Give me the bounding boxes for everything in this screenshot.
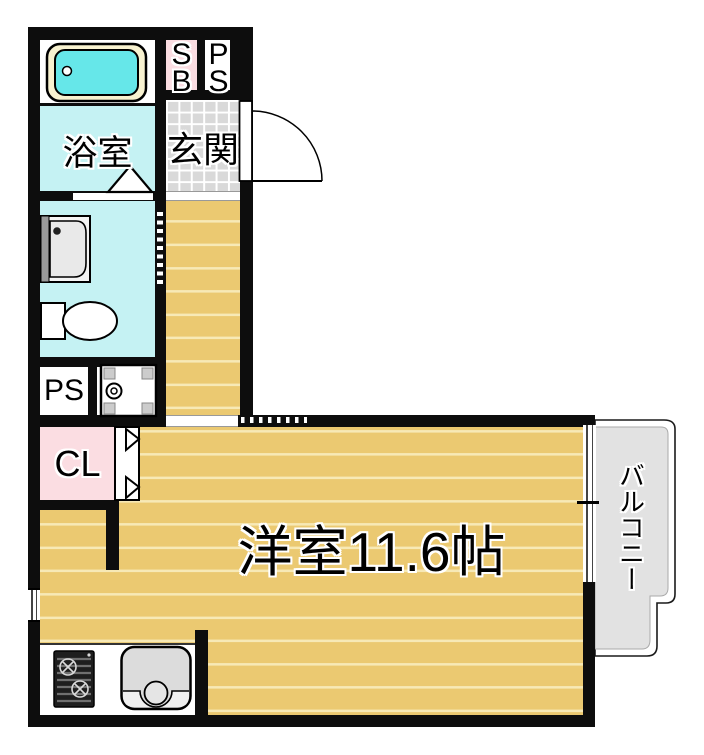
wall-wing-right xyxy=(240,27,253,418)
window-frame-line xyxy=(36,590,38,620)
window-center-tick xyxy=(577,501,599,504)
corridor-room-threshold xyxy=(166,415,238,427)
shoebox-label-line2: B xyxy=(171,68,191,95)
washroom-sliding-door xyxy=(157,212,163,284)
balcony-label: バルコニー xyxy=(615,452,647,602)
wall-sb-ps-divider xyxy=(197,40,205,90)
main-room-label: 洋室11.6帖 xyxy=(160,517,583,577)
pipe-shaft-top-line2: S xyxy=(208,68,228,95)
closet-folding-door xyxy=(112,425,142,503)
washing-machine-pan xyxy=(99,363,159,419)
balcony-sliding-window xyxy=(583,425,596,582)
floor-plan: 浴室 玄関 S B P S PS CL 洋室11.6帖 バルコニー xyxy=(0,0,704,755)
wall-bottom xyxy=(28,715,595,727)
wall-ps-divider xyxy=(88,367,97,415)
bathtub xyxy=(39,37,157,109)
entrance-label: 玄関 xyxy=(166,126,240,168)
kitchen-sink xyxy=(119,644,194,712)
pipe-shaft-top-line1: P xyxy=(208,41,228,68)
toilet xyxy=(40,299,122,343)
window-frame-line xyxy=(586,425,588,582)
wall-left xyxy=(28,27,40,727)
entrance-step-threshold xyxy=(166,191,240,201)
window-frame-line xyxy=(592,425,594,582)
entrance-door-swing xyxy=(238,94,330,188)
pipe-shaft-top-label: P S xyxy=(205,41,232,95)
window-frame-line xyxy=(31,590,33,620)
closet-label: CL xyxy=(40,444,115,484)
washbasin xyxy=(39,214,93,284)
side-window xyxy=(28,588,40,622)
opening-dashed-wall xyxy=(241,417,307,423)
bathroom-label: 浴室 xyxy=(40,130,155,170)
pipe-shaft-label: PS xyxy=(40,374,88,408)
wall-closet-bottom xyxy=(28,500,115,510)
shoebox-label: S B xyxy=(166,41,197,95)
shoebox-label-line1: S xyxy=(171,41,191,68)
gas-stove xyxy=(53,650,95,708)
wall-kitchen-stub xyxy=(195,630,208,715)
wall-closet-stub xyxy=(106,500,119,570)
